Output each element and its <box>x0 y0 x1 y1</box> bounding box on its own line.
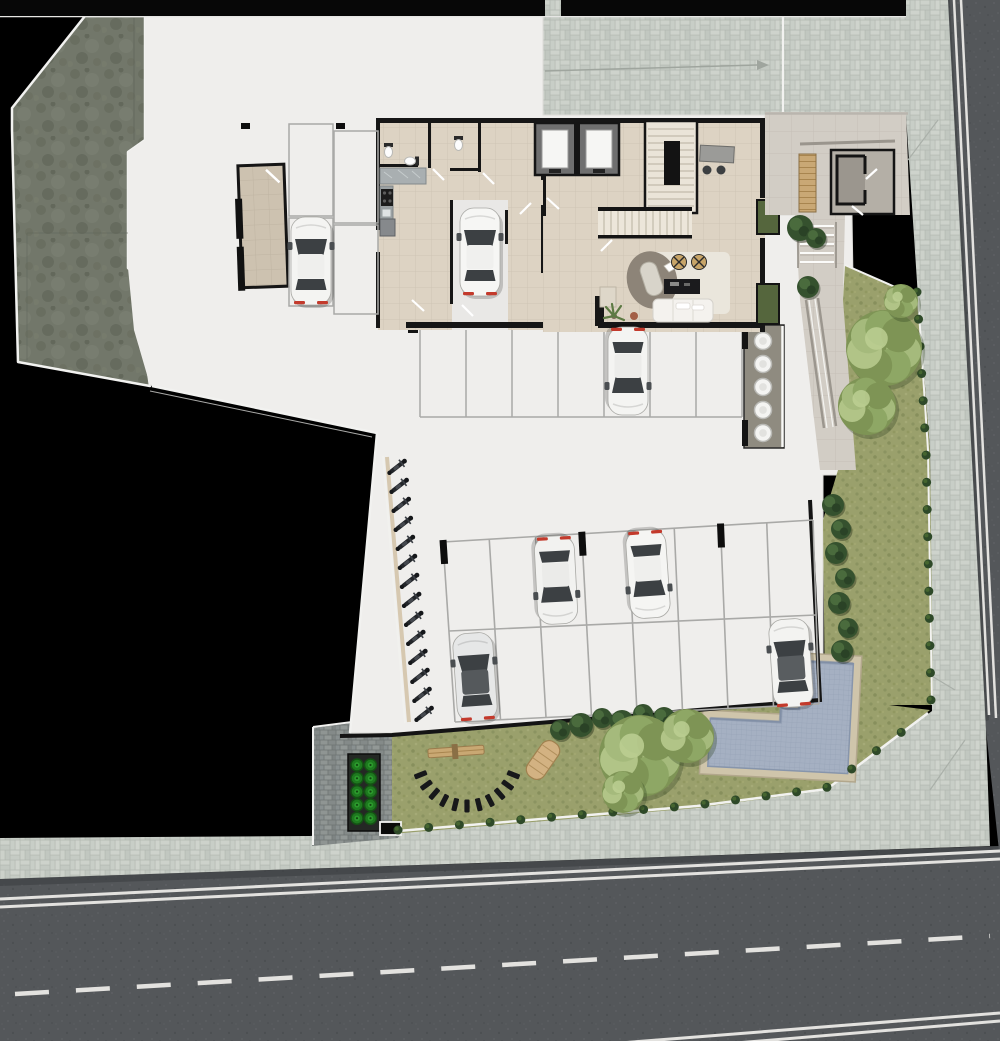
planter-bush <box>351 786 363 798</box>
water-tank <box>755 333 772 350</box>
wall-stub <box>336 123 345 129</box>
shrub <box>925 641 934 650</box>
water-tank <box>755 425 772 442</box>
toilet <box>384 143 393 158</box>
shrub <box>424 823 433 832</box>
elevators <box>535 123 619 175</box>
top-boundary-band <box>0 0 906 17</box>
planter-bush <box>365 759 377 771</box>
taillight <box>634 328 645 331</box>
windshield <box>540 585 573 603</box>
site-plan-svg <box>0 0 1000 1041</box>
staircase-main <box>598 207 692 239</box>
vase <box>630 312 638 320</box>
wall-stub <box>241 123 250 129</box>
car <box>530 532 582 625</box>
water-tank <box>755 356 772 373</box>
taillight <box>611 328 622 331</box>
tv-console <box>664 279 700 294</box>
sofa <box>653 299 713 322</box>
staircase-upper <box>645 121 697 213</box>
shrub <box>455 820 464 829</box>
planter-bush <box>365 786 377 798</box>
shrub <box>578 810 587 819</box>
chair <box>717 166 726 175</box>
lobby <box>535 118 779 332</box>
shrub <box>792 787 801 796</box>
toilet <box>405 157 420 166</box>
taillight <box>463 292 474 295</box>
shrub <box>394 826 403 835</box>
exercise-pad <box>464 800 469 813</box>
shrub <box>923 532 932 541</box>
stool <box>672 255 687 270</box>
wall-stub <box>582 532 583 556</box>
wall-stub <box>721 524 722 548</box>
shrub <box>922 478 931 487</box>
shrub <box>897 728 906 737</box>
stool <box>692 255 707 270</box>
planter-bush <box>351 759 363 771</box>
taillight <box>294 301 305 304</box>
shrub <box>924 587 933 596</box>
shrub <box>926 668 935 677</box>
sink <box>382 209 391 217</box>
elevator-door-2 <box>593 169 605 173</box>
elevator-cab-2 <box>586 130 612 168</box>
elevator-door-1 <box>549 169 561 173</box>
taillight <box>317 301 328 304</box>
shrub <box>924 559 933 568</box>
water-tank <box>755 379 772 396</box>
shrub <box>847 764 856 773</box>
shrub <box>822 783 831 792</box>
gatehouse-room <box>837 156 865 204</box>
shrub <box>872 746 881 755</box>
windshield <box>295 239 327 255</box>
kitchen-counter <box>380 168 426 184</box>
car <box>288 217 335 308</box>
shrub <box>925 614 934 623</box>
planter-bush <box>351 772 363 784</box>
sideboard <box>600 287 616 307</box>
site-plan-render <box>0 0 1000 1041</box>
wood-ramp <box>799 154 816 212</box>
windshield <box>612 377 644 393</box>
car <box>457 208 504 299</box>
toilet <box>454 136 463 151</box>
shrub <box>516 815 525 824</box>
wall-stub <box>443 540 445 564</box>
shrub <box>762 791 771 800</box>
shrub <box>731 795 740 804</box>
shrub <box>920 423 929 432</box>
planter-bush <box>365 812 377 824</box>
planter-bush <box>351 799 363 811</box>
reception-desk <box>700 145 735 163</box>
fridge <box>380 219 395 236</box>
taillight <box>486 292 497 295</box>
water-tank <box>755 402 772 419</box>
elevator-cab-1 <box>542 130 568 168</box>
shrub <box>700 799 709 808</box>
storage-room <box>234 164 288 291</box>
planter <box>757 284 779 324</box>
planter-bush <box>351 812 363 824</box>
shrub <box>922 451 931 460</box>
planter-bush <box>365 799 377 811</box>
shrub <box>919 396 928 405</box>
planter-bush <box>365 772 377 784</box>
taillight <box>537 537 548 541</box>
car <box>605 324 652 415</box>
shrub <box>927 696 936 705</box>
shrub <box>486 818 495 827</box>
windshield <box>464 230 496 246</box>
stove <box>381 189 393 206</box>
shrub <box>547 813 556 822</box>
gatehouse <box>831 150 894 215</box>
shrub <box>670 802 679 811</box>
chair <box>703 166 712 175</box>
taillight <box>560 536 571 540</box>
shrub <box>923 505 932 514</box>
